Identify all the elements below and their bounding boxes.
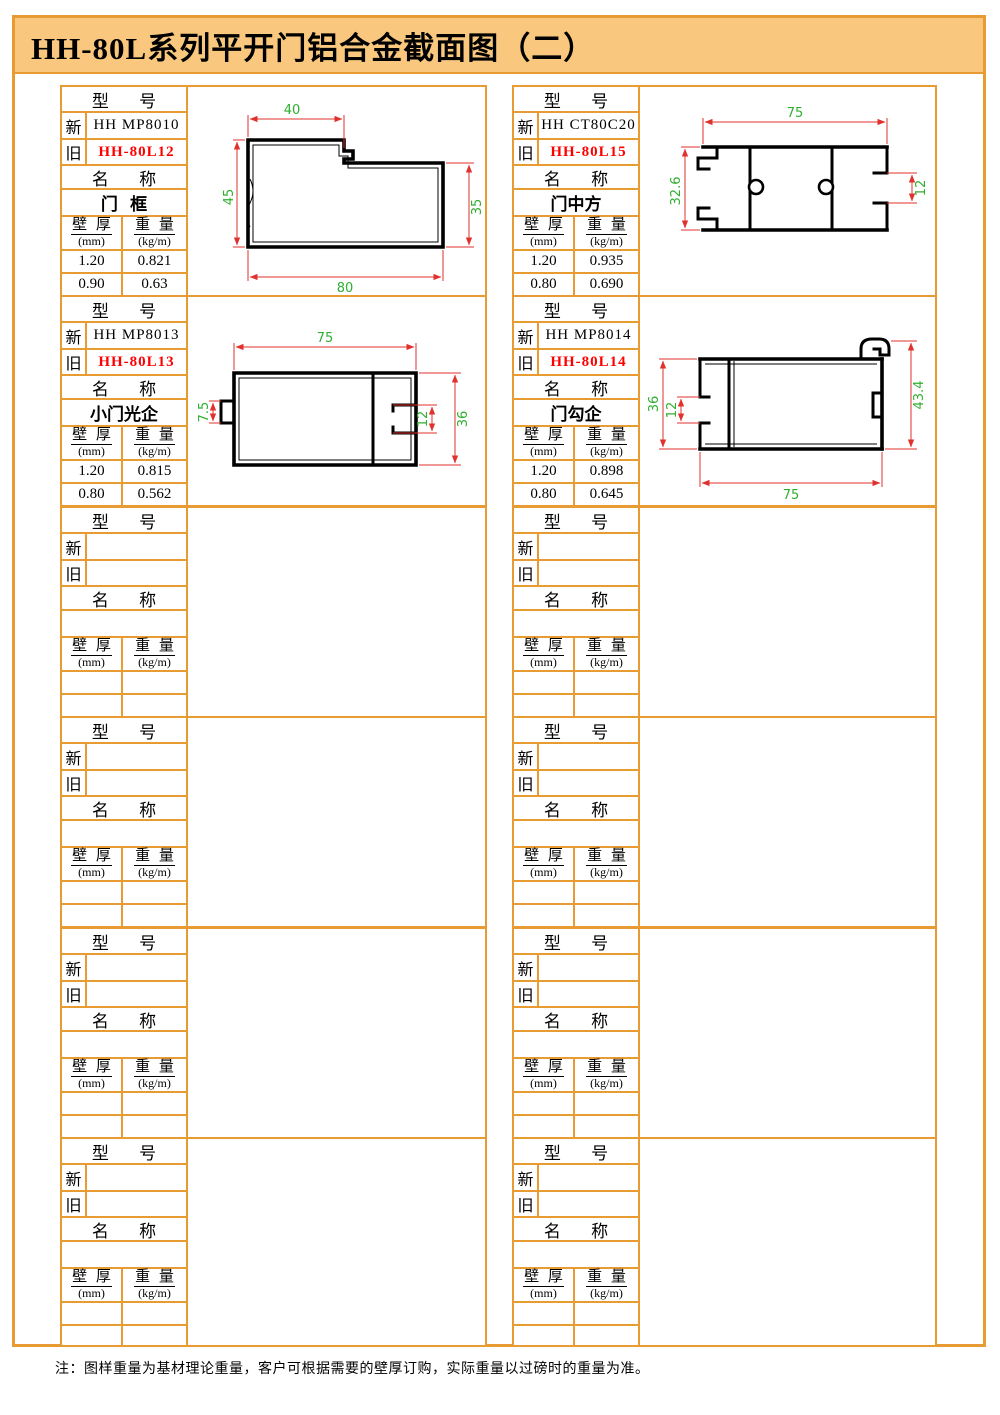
weight-value xyxy=(123,1303,186,1324)
drawing-area xyxy=(186,927,487,1139)
new-model-value: HH MP8010 xyxy=(87,117,186,134)
drawing-area xyxy=(638,927,937,1139)
spec-row xyxy=(514,670,638,693)
spec-column-headers: 壁 厚 (mm) 重 量 (kg/m) xyxy=(514,215,638,249)
name-header: 名 称 xyxy=(514,795,638,819)
name-header: 名 称 xyxy=(514,1216,638,1240)
weight-value xyxy=(575,1326,638,1345)
weight-value: 0.815 xyxy=(123,461,186,482)
spec-table: 型 号 新 旧 名 称 壁 厚 (mm) 重 量 (kg/m) xyxy=(512,716,640,928)
weight-value: 0.898 xyxy=(575,461,638,482)
spec-table: 型 号 新 HH MP8013 旧 HH-80L13 名 称 小门光企 壁 厚 … xyxy=(60,295,188,507)
dim-left-label: 36 xyxy=(647,396,662,413)
old-label: 旧 xyxy=(514,771,539,795)
door-frame-section-drawing: 40 45 35 80 xyxy=(188,87,485,295)
spec-column-headers: 壁 厚 (mm) 重 量 (kg/m) xyxy=(514,1057,638,1091)
name-header: 名 称 xyxy=(62,374,186,398)
profile-block-empty: 型 号 新 旧 名 称 壁 厚 (mm) 重 量 (kg/m) xyxy=(512,927,937,1139)
new-label: 新 xyxy=(514,113,539,138)
spec-table: 型 号 新 旧 名 称 壁 厚 (mm) 重 量 (kg/m) xyxy=(60,506,188,718)
old-model-row: 旧 xyxy=(62,769,186,795)
new-label: 新 xyxy=(514,1165,539,1190)
weight-value xyxy=(123,1116,186,1137)
weight-header: 重 量 (kg/m) xyxy=(575,638,638,670)
thickness-value xyxy=(62,695,123,716)
old-label: 旧 xyxy=(62,350,87,374)
thickness-value xyxy=(62,1303,123,1324)
spec-row: 1.20 0.935 xyxy=(514,249,638,272)
new-model-row: 新 HH CT80C20 xyxy=(514,111,638,138)
drawing-area: 40 45 35 80 xyxy=(186,85,487,297)
dim-inner-label: 12 xyxy=(665,402,680,419)
thickness-value xyxy=(514,905,575,926)
old-model-row: 旧 xyxy=(62,1190,186,1216)
profile-block-empty: 型 号 新 旧 名 称 壁 厚 (mm) 重 量 (kg/m) xyxy=(60,506,487,718)
weight-value: 0.690 xyxy=(575,274,638,295)
new-model-row: 新 xyxy=(62,532,186,559)
thickness-value xyxy=(62,1326,123,1345)
new-model-row: 新 xyxy=(514,532,638,559)
thickness-value xyxy=(62,1116,123,1137)
weight-value: 0.562 xyxy=(123,484,186,505)
spec-row: 0.90 0.63 xyxy=(62,272,186,295)
new-model-value: HH MP8014 xyxy=(539,327,638,344)
model-header: 型 号 xyxy=(514,297,638,321)
old-label: 旧 xyxy=(62,771,87,795)
spec-table: 型 号 新 HH CT80C20 旧 HH-80L15 名 称 门中方 壁 厚 … xyxy=(512,85,640,297)
spec-column-headers: 壁 厚 (mm) 重 量 (kg/m) xyxy=(62,425,186,459)
spec-table: 型 号 新 旧 名 称 壁 厚 (mm) 重 量 (kg/m) xyxy=(60,716,188,928)
thickness-value: 0.80 xyxy=(514,484,575,505)
spec-row xyxy=(62,1091,186,1114)
drawing-area: 75 32.6 12 xyxy=(638,85,937,297)
profile-geometry xyxy=(700,339,889,449)
spec-row xyxy=(514,1324,638,1345)
drawing-area xyxy=(638,716,937,928)
dim-inner-label: 12 xyxy=(416,411,431,428)
dim-notch-label: 7.5 xyxy=(197,402,212,423)
dim-bottom-label: 80 xyxy=(337,281,354,295)
model-header: 型 号 xyxy=(514,1139,638,1163)
drawing-area xyxy=(186,716,487,928)
spec-column-headers: 壁 厚 (mm) 重 量 (kg/m) xyxy=(62,636,186,670)
spec-row xyxy=(62,1301,186,1324)
weight-value xyxy=(123,882,186,903)
weight-header: 重 量 (kg/m) xyxy=(123,638,186,670)
new-label: 新 xyxy=(62,534,87,559)
old-label: 旧 xyxy=(62,561,87,585)
dim-left-label: 45 xyxy=(222,189,237,206)
weight-header: 重 量 (kg/m) xyxy=(123,1059,186,1091)
thickness-value: 0.80 xyxy=(514,274,575,295)
thickness-header: 壁 厚 (mm) xyxy=(514,1059,575,1091)
drawing-area: 75 7.5 12 36 xyxy=(186,295,487,507)
thickness-header: 壁 厚 (mm) xyxy=(62,638,123,670)
profile-name xyxy=(514,819,638,846)
thickness-header: 壁 厚 (mm) xyxy=(62,217,123,249)
profile-geometry xyxy=(247,140,443,247)
dimensions: 75 7.5 12 36 xyxy=(197,331,471,465)
old-label: 旧 xyxy=(514,140,539,164)
spec-column-headers: 壁 厚 (mm) 重 量 (kg/m) xyxy=(514,846,638,880)
new-model-row: 新 xyxy=(62,953,186,980)
new-label: 新 xyxy=(62,744,87,769)
door-hook-stile-section-drawing: 36 12 43.4 75 xyxy=(640,297,935,505)
name-header: 名 称 xyxy=(514,374,638,398)
spec-column-headers: 壁 厚 (mm) 重 量 (kg/m) xyxy=(62,846,186,880)
name-header: 名 称 xyxy=(514,585,638,609)
drawing-area xyxy=(638,506,937,718)
weight-value: 0.935 xyxy=(575,251,638,272)
thickness-value: 1.20 xyxy=(514,461,575,482)
name-header: 名 称 xyxy=(62,585,186,609)
profile-name: 小门光企 xyxy=(62,398,186,425)
old-label: 旧 xyxy=(514,1192,539,1216)
weight-value xyxy=(575,1093,638,1114)
thickness-value: 0.90 xyxy=(62,274,123,295)
spec-column-headers: 壁 厚 (mm) 重 量 (kg/m) xyxy=(514,636,638,670)
old-label: 旧 xyxy=(62,1192,87,1216)
old-model-row: 旧 xyxy=(514,980,638,1006)
weight-value xyxy=(123,695,186,716)
old-label: 旧 xyxy=(514,561,539,585)
dim-right-label: 43.4 xyxy=(912,381,927,410)
weight-value xyxy=(123,1326,186,1345)
footnote: 注：图样重量为基材理论重量，客户可根据需要的壁厚订购，实际重量以过磅时的重量为准… xyxy=(55,1358,650,1378)
old-model-row: 旧 xyxy=(62,980,186,1006)
spec-table: 型 号 新 旧 名 称 壁 厚 (mm) 重 量 (kg/m) xyxy=(512,1137,640,1347)
profile-name xyxy=(62,609,186,636)
name-header: 名 称 xyxy=(514,164,638,188)
new-label: 新 xyxy=(514,955,539,980)
thickness-value xyxy=(62,1093,123,1114)
spec-row xyxy=(514,693,638,716)
spec-row: 1.20 0.898 xyxy=(514,459,638,482)
new-model-row: 新 HH MP8010 xyxy=(62,111,186,138)
new-label: 新 xyxy=(62,113,87,138)
spec-row xyxy=(62,1324,186,1345)
weight-value xyxy=(575,672,638,693)
thickness-value xyxy=(62,882,123,903)
spec-row xyxy=(62,1114,186,1137)
weight-header: 重 量 (kg/m) xyxy=(123,848,186,880)
old-model-value: HH-80L14 xyxy=(539,354,638,371)
dim-left-label: 32.6 xyxy=(669,177,684,206)
model-header: 型 号 xyxy=(62,508,186,532)
profile-block-empty: 型 号 新 旧 名 称 壁 厚 (mm) 重 量 (kg/m) xyxy=(60,927,487,1139)
profile-name xyxy=(62,819,186,846)
old-model-row: 旧 HH-80L15 xyxy=(514,138,638,164)
profile-name xyxy=(62,1030,186,1057)
profile-block-empty: 型 号 新 旧 名 称 壁 厚 (mm) 重 量 (kg/m) xyxy=(60,716,487,928)
new-model-row: 新 xyxy=(514,953,638,980)
thickness-value xyxy=(514,695,575,716)
thickness-header: 壁 厚 (mm) xyxy=(62,848,123,880)
page-title: HH-80L系列平开门铝合金截面图（二） xyxy=(31,23,595,68)
thickness-value xyxy=(514,1093,575,1114)
model-header: 型 号 xyxy=(62,929,186,953)
spec-table: 型 号 新 旧 名 称 壁 厚 (mm) 重 量 (kg/m) xyxy=(512,927,640,1139)
drawing-area xyxy=(638,1137,937,1347)
spec-column-headers: 壁 厚 (mm) 重 量 (kg/m) xyxy=(62,215,186,249)
catalog-page: { "title": "HH-80L系列平开门铝合金截面图（二）", "note… xyxy=(0,0,1000,1415)
profile-name xyxy=(62,1240,186,1267)
dim-top-label: 75 xyxy=(317,331,334,346)
old-label: 旧 xyxy=(514,982,539,1006)
new-label: 新 xyxy=(62,955,87,980)
old-model-value: HH-80L15 xyxy=(539,144,638,161)
profile-name: 门勾企 xyxy=(514,398,638,425)
drawing-area xyxy=(186,1137,487,1347)
old-label: 旧 xyxy=(62,982,87,1006)
new-model-value: HH CT80C20 xyxy=(539,117,638,134)
thickness-value: 1.20 xyxy=(514,251,575,272)
spec-table: 型 号 新 HH MP8010 旧 HH-80L12 名 称 门 框 壁 厚 (… xyxy=(60,85,188,297)
model-header: 型 号 xyxy=(514,929,638,953)
old-model-value: HH-80L12 xyxy=(87,144,186,161)
thickness-value xyxy=(514,1116,575,1137)
new-model-row: 新 HH MP8013 xyxy=(62,321,186,348)
title-bar: HH-80L系列平开门铝合金截面图（二） xyxy=(15,18,983,74)
new-model-row: 新 xyxy=(62,742,186,769)
old-label: 旧 xyxy=(62,140,87,164)
weight-value: 0.821 xyxy=(123,251,186,272)
old-model-row: 旧 HH-80L13 xyxy=(62,348,186,374)
thickness-value xyxy=(514,882,575,903)
spec-row xyxy=(62,670,186,693)
profile-name: 门中方 xyxy=(514,188,638,215)
door-mullion-section-drawing: 75 32.6 12 xyxy=(640,87,935,295)
spec-row: 1.20 0.815 xyxy=(62,459,186,482)
weight-value xyxy=(575,882,638,903)
spec-row xyxy=(514,1091,638,1114)
weight-header: 重 量 (kg/m) xyxy=(575,848,638,880)
spec-column-headers: 壁 厚 (mm) 重 量 (kg/m) xyxy=(62,1057,186,1091)
name-header: 名 称 xyxy=(62,795,186,819)
weight-header: 重 量 (kg/m) xyxy=(575,1059,638,1091)
new-model-row: 新 xyxy=(62,1163,186,1190)
drawing-area xyxy=(186,506,487,718)
spec-row: 1.20 0.821 xyxy=(62,249,186,272)
spec-row xyxy=(514,1114,638,1137)
spec-table: 型 号 新 旧 名 称 壁 厚 (mm) 重 量 (kg/m) xyxy=(512,506,640,718)
old-model-row: 旧 xyxy=(514,559,638,585)
weight-header: 重 量 (kg/m) xyxy=(575,427,638,459)
spec-table: 型 号 新 旧 名 称 壁 厚 (mm) 重 量 (kg/m) xyxy=(60,1137,188,1347)
model-header: 型 号 xyxy=(514,87,638,111)
thickness-header: 壁 厚 (mm) xyxy=(514,638,575,670)
model-header: 型 号 xyxy=(62,718,186,742)
thickness-header: 壁 厚 (mm) xyxy=(514,848,575,880)
dim-right-label: 36 xyxy=(456,411,471,428)
spec-column-headers: 壁 厚 (mm) 重 量 (kg/m) xyxy=(514,1267,638,1301)
profile-block-empty: 型 号 新 旧 名 称 壁 厚 (mm) 重 量 (kg/m) xyxy=(512,1137,937,1347)
thickness-header: 壁 厚 (mm) xyxy=(514,217,575,249)
old-model-value: HH-80L13 xyxy=(87,354,186,371)
name-header: 名 称 xyxy=(62,1216,186,1240)
profile-block-small-door-stile: 型 号 新 HH MP8013 旧 HH-80L13 名 称 小门光企 壁 厚 … xyxy=(60,295,487,507)
thickness-value xyxy=(62,672,123,693)
new-label: 新 xyxy=(514,534,539,559)
weight-value xyxy=(575,695,638,716)
old-model-row: 旧 xyxy=(514,769,638,795)
profile-geometry xyxy=(698,147,887,230)
new-label: 新 xyxy=(514,744,539,769)
spec-row xyxy=(62,880,186,903)
profile-block-door-frame: 型 号 新 HH MP8010 旧 HH-80L12 名 称 门 框 壁 厚 (… xyxy=(60,85,487,297)
new-label: 新 xyxy=(62,323,87,348)
dim-top-label: 40 xyxy=(284,103,301,118)
old-model-row: 旧 HH-80L12 xyxy=(62,138,186,164)
name-header: 名 称 xyxy=(514,1006,638,1030)
thickness-value: 0.80 xyxy=(62,484,123,505)
thickness-value xyxy=(514,1326,575,1345)
spec-table: 型 号 新 旧 名 称 壁 厚 (mm) 重 量 (kg/m) xyxy=(60,927,188,1139)
name-header: 名 称 xyxy=(62,1006,186,1030)
spec-row xyxy=(514,903,638,926)
spec-row: 0.80 0.562 xyxy=(62,482,186,505)
new-model-row: 新 HH MP8014 xyxy=(514,321,638,348)
weight-header: 重 量 (kg/m) xyxy=(123,427,186,459)
thickness-header: 壁 厚 (mm) xyxy=(62,1269,123,1301)
spec-row xyxy=(62,903,186,926)
thickness-value: 1.20 xyxy=(62,461,123,482)
profile-geometry xyxy=(221,373,416,465)
weight-value xyxy=(575,905,638,926)
profile-block-door-hook-stile: 型 号 新 HH MP8014 旧 HH-80L14 名 称 门勾企 壁 厚 (… xyxy=(512,295,937,507)
weight-value xyxy=(123,1093,186,1114)
weight-header: 重 量 (kg/m) xyxy=(123,1269,186,1301)
profile-block-empty: 型 号 新 旧 名 称 壁 厚 (mm) 重 量 (kg/m) xyxy=(512,716,937,928)
spec-column-headers: 壁 厚 (mm) 重 量 (kg/m) xyxy=(62,1267,186,1301)
small-door-stile-section-drawing: 75 7.5 12 36 xyxy=(188,297,485,505)
weight-value xyxy=(575,1116,638,1137)
model-header: 型 号 xyxy=(62,87,186,111)
new-model-row: 新 xyxy=(514,1163,638,1190)
profile-name xyxy=(514,1030,638,1057)
thickness-value: 1.20 xyxy=(62,251,123,272)
profile-block-empty: 型 号 新 旧 名 称 壁 厚 (mm) 重 量 (kg/m) xyxy=(512,506,937,718)
dimensions: 36 12 43.4 75 xyxy=(647,341,927,503)
profile-name xyxy=(514,609,638,636)
old-label: 旧 xyxy=(514,350,539,374)
weight-header: 重 量 (kg/m) xyxy=(123,217,186,249)
weight-value xyxy=(123,905,186,926)
spec-row xyxy=(62,693,186,716)
weight-header: 重 量 (kg/m) xyxy=(575,217,638,249)
spec-row xyxy=(514,880,638,903)
spec-table: 型 号 新 HH MP8014 旧 HH-80L14 名 称 门勾企 壁 厚 (… xyxy=(512,295,640,507)
thickness-value xyxy=(514,672,575,693)
new-label: 新 xyxy=(62,1165,87,1190)
model-header: 型 号 xyxy=(62,1139,186,1163)
old-model-row: 旧 HH-80L14 xyxy=(514,348,638,374)
model-header: 型 号 xyxy=(62,297,186,321)
dim-bottom-label: 75 xyxy=(783,488,800,503)
thickness-value xyxy=(514,1303,575,1324)
weight-value xyxy=(123,672,186,693)
spec-row: 0.80 0.645 xyxy=(514,482,638,505)
spec-column-headers: 壁 厚 (mm) 重 量 (kg/m) xyxy=(514,425,638,459)
profile-block-empty: 型 号 新 旧 名 称 壁 厚 (mm) 重 量 (kg/m) xyxy=(60,1137,487,1347)
profile-name: 门 框 xyxy=(62,188,186,215)
weight-value xyxy=(575,1303,638,1324)
old-model-row: 旧 xyxy=(62,559,186,585)
spec-row xyxy=(514,1301,638,1324)
thickness-header: 壁 厚 (mm) xyxy=(62,427,123,459)
profile-block-door-mullion: 型 号 新 HH CT80C20 旧 HH-80L15 名 称 门中方 壁 厚 … xyxy=(512,85,937,297)
name-header: 名 称 xyxy=(62,164,186,188)
thickness-header: 壁 厚 (mm) xyxy=(62,1059,123,1091)
dim-right-label: 35 xyxy=(470,199,485,216)
spec-row: 0.80 0.690 xyxy=(514,272,638,295)
weight-value: 0.63 xyxy=(123,274,186,295)
thickness-header: 壁 厚 (mm) xyxy=(514,427,575,459)
profile-name xyxy=(514,1240,638,1267)
weight-value: 0.645 xyxy=(575,484,638,505)
dim-right-label: 12 xyxy=(914,180,929,197)
model-header: 型 号 xyxy=(514,508,638,532)
dimensions: 40 45 35 80 xyxy=(222,103,485,295)
weight-header: 重 量 (kg/m) xyxy=(575,1269,638,1301)
drawing-area: 36 12 43.4 75 xyxy=(638,295,937,507)
model-header: 型 号 xyxy=(514,718,638,742)
thickness-header: 壁 厚 (mm) xyxy=(514,1269,575,1301)
new-model-row: 新 xyxy=(514,742,638,769)
thickness-value xyxy=(62,905,123,926)
new-model-value: HH MP8013 xyxy=(87,327,186,344)
old-model-row: 旧 xyxy=(514,1190,638,1216)
dim-top-label: 75 xyxy=(787,106,804,121)
new-label: 新 xyxy=(514,323,539,348)
